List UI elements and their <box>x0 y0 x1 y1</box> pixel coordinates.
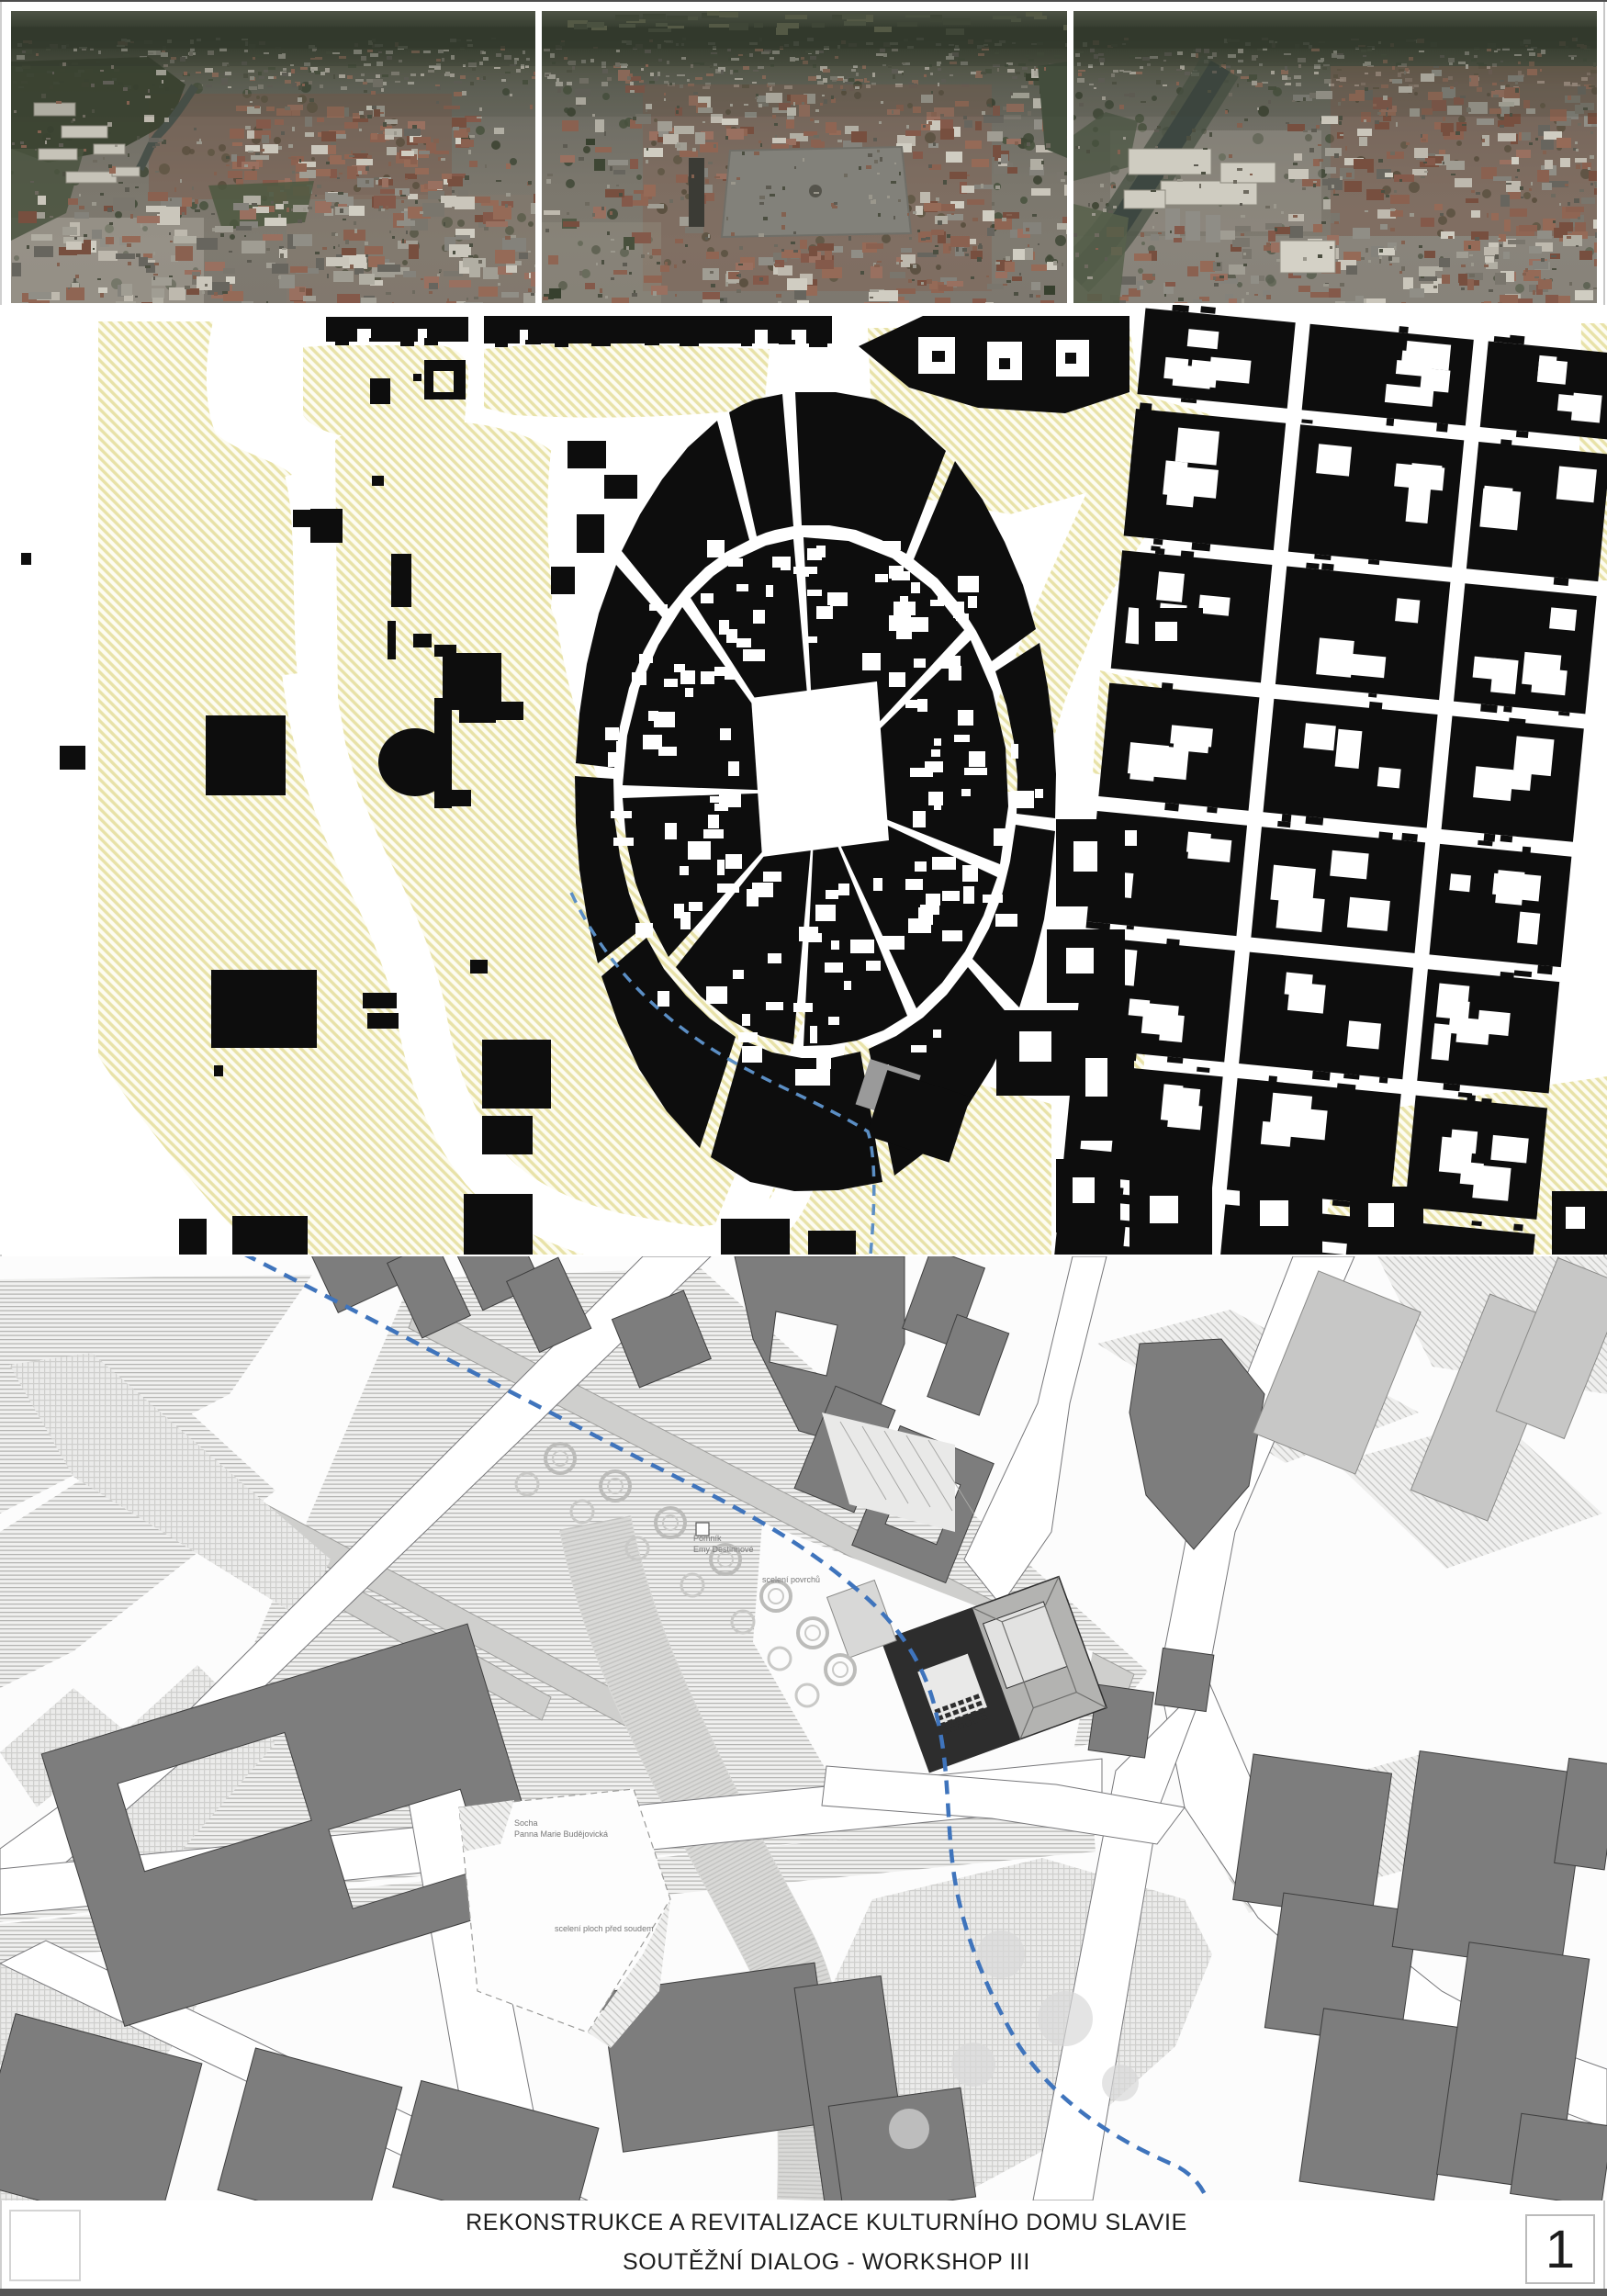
svg-text:Socha: Socha <box>514 1818 538 1828</box>
svg-text:scelení povrchů: scelení povrchů <box>762 1575 820 1584</box>
svg-text:Emy Destinnové: Emy Destinnové <box>693 1545 754 1554</box>
svg-text:Panna Marie Budějovická: Panna Marie Budějovická <box>514 1829 608 1839</box>
svg-text:Pomník: Pomník <box>693 1534 722 1543</box>
svg-text:scelení ploch před soudem: scelení ploch před soudem <box>555 1924 654 1933</box>
